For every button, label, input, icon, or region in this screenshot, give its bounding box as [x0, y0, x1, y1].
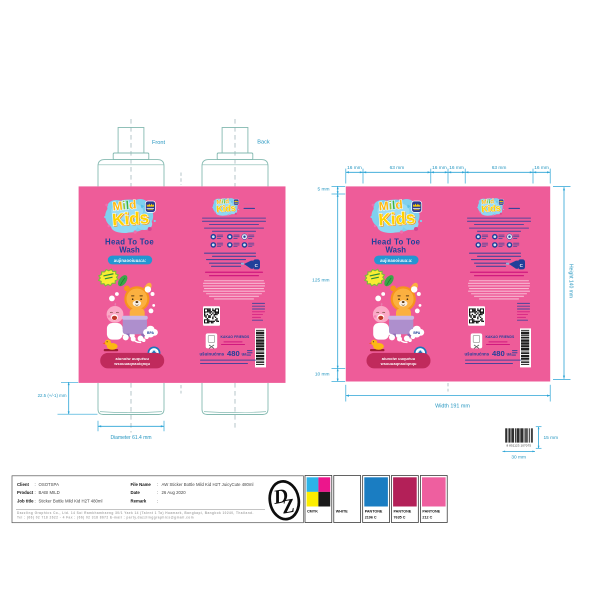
svg-text:15 mm: 15 mm	[544, 435, 559, 441]
svg-text::: :	[157, 490, 158, 495]
svg-text:Width 191 mm: Width 191 mm	[435, 404, 470, 410]
svg-text:Tel : (66) 02 718 2622 - 4: Tel : (66) 02 718 2622 - 4 Fax : (66) 02…	[17, 516, 194, 520]
svg-text:BABI MILD: BABI MILD	[39, 490, 60, 495]
svg-text:63 mm: 63 mm	[390, 165, 405, 171]
svg-text:PANTONE: PANTONE	[365, 510, 383, 514]
svg-text:Job title: Job title	[17, 498, 34, 503]
svg-text:Sticker Bottle Mild Kid H2T 48: Sticker Bottle Mild Kid H2T 480ml	[39, 498, 103, 503]
svg-text::: :	[35, 490, 36, 495]
svg-text:212 C: 212 C	[422, 515, 432, 519]
svg-text:Height 140 mm: Height 140 mm	[568, 264, 574, 298]
svg-text:PANTONE: PANTONE	[422, 510, 440, 514]
svg-text:Front: Front	[152, 140, 166, 146]
svg-text:PANTONE: PANTONE	[394, 510, 412, 514]
svg-text:63 mm: 63 mm	[492, 165, 507, 171]
svg-text:16 mm: 16 mm	[432, 165, 447, 171]
svg-text::: :	[157, 482, 158, 487]
svg-text:Product: Product	[17, 490, 34, 495]
svg-text:Dazzling Graphics Co., Ltd. 14: Dazzling Graphics Co., Ltd. 14 Soi Ramkh…	[17, 511, 254, 515]
svg-text:Remark: Remark	[131, 498, 147, 503]
svg-text:26 Aug 2020: 26 Aug 2020	[162, 490, 187, 495]
svg-text:8 851123 107075: 8 851123 107075	[506, 444, 531, 448]
svg-text:Client: Client	[17, 482, 30, 487]
svg-text:OSOTSPA: OSOTSPA	[39, 482, 60, 487]
svg-text:CMYK: CMYK	[307, 510, 318, 514]
svg-text:AW Sticker Bottle Mild Kid H2T: AW Sticker Bottle Mild Kid H2T JuicyCute…	[162, 482, 254, 487]
svg-text::: :	[157, 498, 158, 503]
svg-text:File Name: File Name	[131, 482, 152, 487]
svg-text:5 mm: 5 mm	[318, 186, 330, 192]
svg-text:Diameter 61.4 mm: Diameter 61.4 mm	[110, 435, 151, 441]
svg-text::: :	[35, 482, 36, 487]
svg-text:10 mm: 10 mm	[315, 372, 330, 378]
svg-text:30 mm: 30 mm	[511, 454, 526, 460]
svg-text:16 mm: 16 mm	[347, 165, 362, 171]
svg-text:Back: Back	[257, 140, 270, 146]
svg-text:16 mm: 16 mm	[449, 165, 464, 171]
svg-text:22.5 (+/-1) mm: 22.5 (+/-1) mm	[38, 393, 67, 398]
svg-text:7635 C: 7635 C	[394, 515, 406, 519]
svg-text:2196 C: 2196 C	[365, 515, 377, 519]
svg-text:125 mm: 125 mm	[312, 278, 329, 284]
svg-text:Date: Date	[131, 490, 141, 495]
svg-text:16 mm: 16 mm	[534, 165, 549, 171]
svg-text::: :	[35, 498, 36, 503]
svg-text:WHITE: WHITE	[336, 510, 348, 514]
